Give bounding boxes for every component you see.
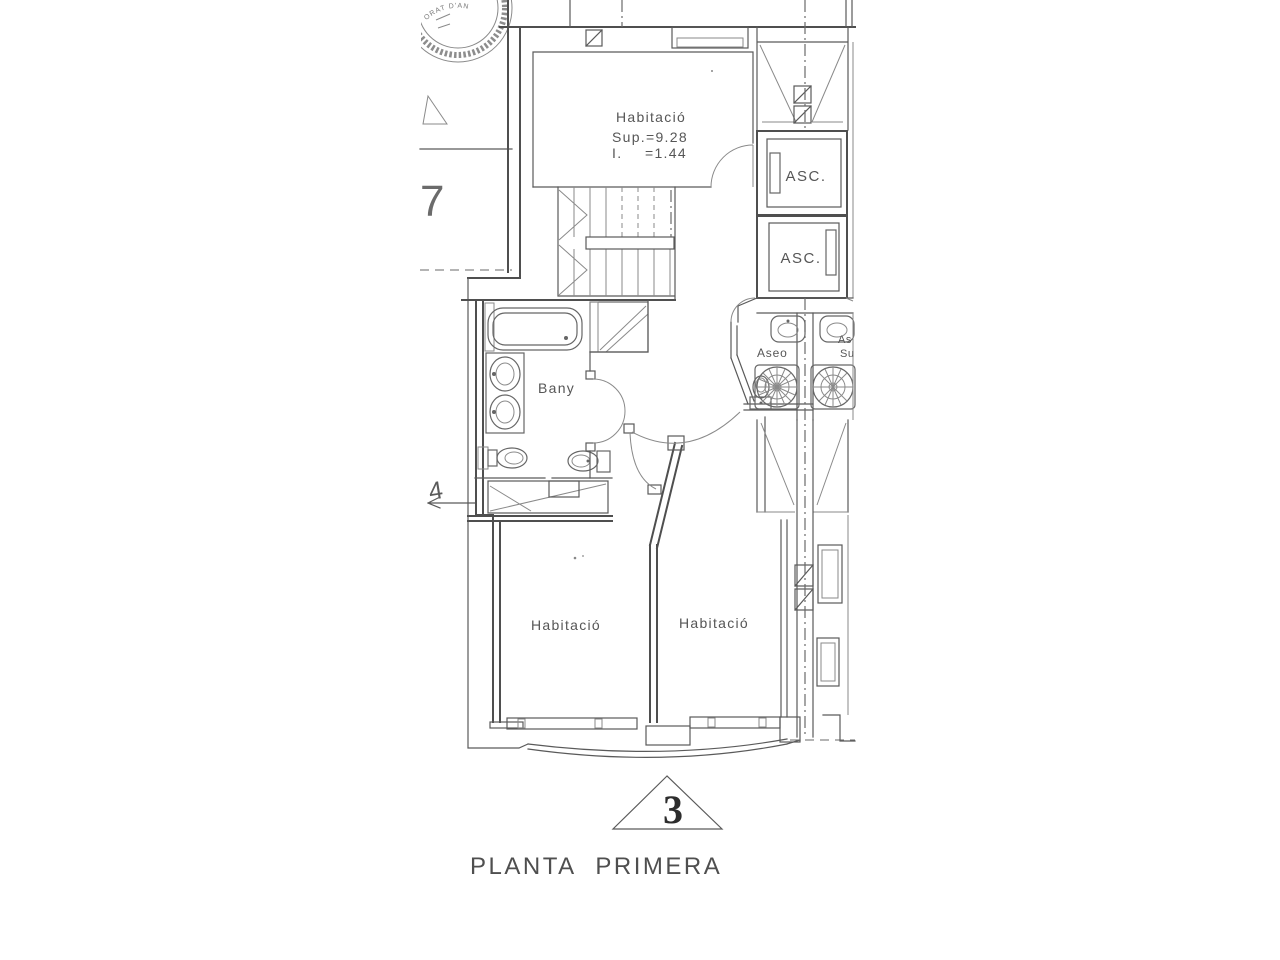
shaft-side-box-2 [817, 638, 839, 686]
bedroom-top-dim-value: =1.44 [645, 145, 687, 161]
bedroom-top-dim-label: I. [612, 145, 622, 161]
window-left [507, 718, 637, 729]
door-swing-arc [711, 145, 753, 187]
bidet [488, 448, 527, 468]
toilet-sink [771, 316, 805, 342]
bedrooms-top-wall [468, 516, 612, 521]
official-seal: ORAT D'AN [404, 0, 512, 62]
balcony [468, 739, 800, 757]
plan-title: PLANTA PRIMERA [470, 853, 722, 880]
staircase [558, 187, 675, 300]
bathtub-drain [564, 336, 568, 340]
elevator-1-door-rail [770, 153, 780, 193]
bathroom-left-wall [476, 300, 483, 515]
bedroom-top-room: Habitació Sup.=9.28 I. =1.44 [533, 27, 753, 187]
stair-treads [574, 187, 670, 296]
stair-treads-dashed [622, 187, 654, 237]
closet [488, 481, 608, 513]
neighbor-toilet-fragment: As Su [811, 298, 855, 420]
toilet-label: Aseo [757, 346, 788, 360]
bedroom-left-label: Habitació [531, 617, 601, 633]
bedroom-left-wall [476, 515, 500, 722]
window-right [690, 717, 780, 728]
bedroom-top-label: Habitació [616, 109, 686, 125]
seal-text: ORAT D'AN [423, 3, 470, 22]
scanned-floor-plan-page: ORAT D'AN 7 4 [0, 0, 1280, 960]
bedroom-divider-wall [650, 545, 657, 722]
bedroom-door-swing [630, 433, 656, 489]
stair-break-marks [559, 190, 587, 295]
section-arrow-4: 4 [427, 476, 476, 508]
spiral-stair-2 [811, 365, 855, 409]
shower-walls [590, 300, 648, 352]
bottom-bedrooms: Habitació Habitació [531, 555, 749, 633]
toilet-room: Aseo As Su [731, 298, 855, 420]
service-shaft [757, 420, 848, 737]
elevator-2-door-rail [826, 230, 836, 275]
top-right-edge [846, 0, 852, 27]
shower [590, 302, 648, 352]
neighbor-label-line1: As [838, 334, 852, 346]
balcony-divider-box [646, 726, 690, 745]
spiral-spokes [813, 367, 853, 407]
sink-1 [490, 357, 520, 391]
toilet-door-swing [632, 412, 740, 443]
balcony-outer-edge [528, 744, 787, 757]
section-triangle-mark [423, 96, 447, 124]
toilet-door-arc [731, 298, 755, 322]
stair-walls [558, 187, 675, 300]
spiral-spokes [757, 367, 797, 407]
scan-speck [711, 70, 713, 72]
elevator-2-label: ASC. [780, 250, 821, 267]
level-mark-7: 7 [420, 177, 444, 226]
door-jamb [648, 485, 661, 494]
right-corner-walls [823, 715, 855, 741]
bedroom-right-label: Habitació [679, 615, 749, 631]
level-mark-4: 4 [427, 476, 445, 506]
door-swing-arc [593, 379, 625, 443]
seal-inner-marks [436, 14, 450, 28]
drawing-number: 3 [663, 787, 683, 832]
shaft-outer-walls [757, 420, 848, 512]
bedroom-right-wall [781, 520, 787, 717]
bathtub [488, 308, 582, 350]
elevator-1: ASC. [757, 131, 847, 215]
elevator-2: ASC. [757, 216, 847, 298]
left-margin-annotations: 7 4 [420, 96, 512, 508]
hall-diagonal-wall [650, 443, 682, 548]
bathroom-label: Bany [538, 380, 575, 396]
vent-shaft-braces [760, 45, 845, 122]
shaft-braces [757, 423, 848, 512]
bathroom: Bany [475, 300, 648, 513]
sink-2 [490, 395, 520, 429]
neighbor-label-line2: Su [840, 348, 854, 360]
toilet [568, 451, 610, 472]
drawing-number-block: 3 [613, 776, 722, 832]
scan-speck [582, 555, 584, 557]
hall-doors [624, 412, 740, 494]
window-top [672, 27, 748, 48]
elevator-1-label: ASC. [785, 168, 826, 185]
floor-plan-drawing: ORAT D'AN 7 4 [0, 0, 1280, 960]
shaft-side-box-1 [818, 545, 842, 603]
door-jamb [624, 424, 634, 433]
toilet-left-wall [731, 298, 757, 358]
bathroom-door [586, 352, 625, 478]
scan-speck [574, 557, 577, 560]
stair-landing-rail [586, 237, 674, 249]
bedroom-top-area: Sup.=9.28 [612, 129, 688, 145]
